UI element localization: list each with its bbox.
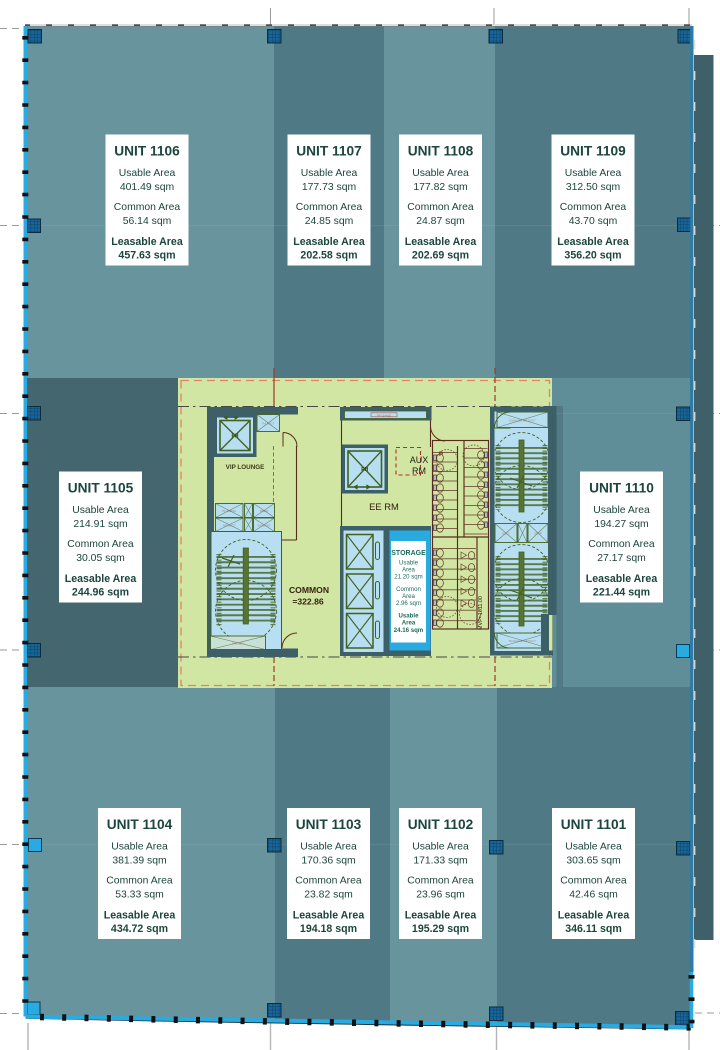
svg-text:Common Area: Common Area [296,202,363,213]
svg-text:Common Area: Common Area [407,876,474,887]
svg-text:56.14 sqm: 56.14 sqm [123,216,172,227]
svg-text:Usable Area: Usable Area [111,842,168,853]
svg-text:Usable Area: Usable Area [300,842,357,853]
svg-text:Common Area: Common Area [588,539,655,550]
svg-text:170.36 sqm: 170.36 sqm [301,856,355,867]
svg-text:Leasable Area: Leasable Area [557,236,629,248]
svg-text:30.05 sqm: 30.05 sqm [76,553,125,564]
svg-text:24.16 sqm: 24.16 sqm [394,627,424,634]
svg-text:42.46 sqm: 42.46 sqm [569,890,618,901]
svg-text:RISER: RISER [260,509,268,513]
svg-text:43.70 sqm: 43.70 sqm [569,216,618,227]
svg-text:Leasable Area: Leasable Area [293,236,365,248]
svg-text:UNIT 1103: UNIT 1103 [296,817,362,832]
svg-text:Usable: Usable [399,560,419,567]
svg-text:P.A DUCT: P.A DUCT [262,422,274,426]
svg-text:Usable Area: Usable Area [565,842,622,853]
svg-text:Common Area: Common Area [407,202,474,213]
svg-text:UNIT 1105: UNIT 1105 [68,481,134,496]
svg-text:24.87 sqm: 24.87 sqm [416,216,465,227]
svg-text:P.A DUCT: P.A DUCT [232,641,244,645]
svg-text:EXHAUST AIR DUCT: EXHAUST AIR DUCT [510,418,536,422]
svg-text:53.33 sqm: 53.33 sqm [115,890,164,901]
svg-text:DUCT: DUCT [502,532,510,536]
svg-text:AIR DUCT: AIR DUCT [223,523,236,527]
svg-text:EXHAUST: EXHAUST [258,523,271,527]
svg-text:Usable Area: Usable Area [565,168,622,179]
svg-text:FH: FH [232,434,239,440]
svg-text:24.85 sqm: 24.85 sqm [305,216,354,227]
svg-text:Common: Common [396,586,421,593]
svg-text:Leasable Area: Leasable Area [405,910,477,922]
svg-text:Common Area: Common Area [67,539,134,550]
svg-text:202.69 sqm: 202.69 sqm [412,250,469,262]
svg-text:=322.86: =322.86 [292,597,324,607]
svg-text:STAIR: STAIR [534,532,542,536]
svg-text:Area: Area [402,593,415,600]
svg-text:23.82 sqm: 23.82 sqm [304,890,353,901]
svg-text:P: P [439,452,443,458]
svg-text:21.20 sqm: 21.20 sqm [394,574,422,581]
svg-text:312.50 sqm: 312.50 sqm [566,182,620,193]
svg-text:434.72 sqm: 434.72 sqm [111,923,168,935]
svg-text:AUX: AUX [410,455,429,465]
svg-text:UNIT 1102: UNIT 1102 [408,817,474,832]
svg-text:Usable Area: Usable Area [412,842,469,853]
svg-text:Leasable Area: Leasable Area [405,236,477,248]
svg-text:202.58 sqm: 202.58 sqm [300,250,357,262]
svg-text:171.33 sqm: 171.33 sqm [413,856,467,867]
svg-text:EE RM: EE RM [369,501,399,512]
svg-text:UNIT 1104: UNIT 1104 [107,817,173,832]
svg-text:PLUMBING: PLUMBING [222,509,236,513]
svg-text:195.29 sqm: 195.29 sqm [412,923,469,935]
svg-text:Leasable Area: Leasable Area [558,910,630,922]
svg-text:Usable Area: Usable Area [412,168,469,179]
svg-text:Leasable Area: Leasable Area [293,910,365,922]
svg-text:177.73 sqm: 177.73 sqm [302,182,356,193]
svg-text:Usable: Usable [399,613,420,620]
svg-text:UNIT 1106: UNIT 1106 [114,144,180,159]
svg-text:Area: Area [402,567,415,574]
svg-text:194.27 sqm: 194.27 sqm [594,519,648,530]
svg-text:214.91 sqm: 214.91 sqm [73,519,127,530]
svg-text:356.20 sqm: 356.20 sqm [564,250,621,262]
svg-text:177.82 sqm: 177.82 sqm [413,182,467,193]
svg-text:RP CHASE: RP CHASE [377,413,391,417]
svg-text:457.63 sqm: 457.63 sqm [118,250,175,262]
svg-text:Common Area: Common Area [114,202,181,213]
svg-text:Common Area: Common Area [560,202,627,213]
svg-text:BAGGAGE AIR DUCT: BAGGAGE AIR DUCT [509,639,536,643]
svg-text:UNIT 1110: UNIT 1110 [589,481,654,496]
svg-text:UNIT 1108: UNIT 1108 [408,144,474,159]
svg-text:23.96 sqm: 23.96 sqm [416,890,465,901]
svg-text:UNIT 1101: UNIT 1101 [561,817,627,832]
svg-text:RM: RM [412,466,426,476]
svg-text:UNIT 1107: UNIT 1107 [296,144,362,159]
svg-text:381.39 sqm: 381.39 sqm [112,856,166,867]
svg-text:Leasable Area: Leasable Area [111,236,183,248]
svg-text:Leasable Area: Leasable Area [65,573,137,585]
svg-text:FH: FH [361,467,368,473]
svg-text:Common Area: Common Area [295,876,362,887]
svg-text:Usable Area: Usable Area [72,505,129,516]
svg-text:221.44 sqm: 221.44 sqm [593,587,650,599]
svg-text:Common Area: Common Area [106,876,173,887]
svg-text:Usable Area: Usable Area [119,168,176,179]
svg-text:Usable Area: Usable Area [593,505,650,516]
svg-text:194.18 sqm: 194.18 sqm [300,923,357,935]
svg-text:303.65 sqm: 303.65 sqm [566,856,620,867]
svg-text:VIP LOUNGE: VIP LOUNGE [226,464,265,471]
svg-text:401.49 sqm: 401.49 sqm [120,182,174,193]
svg-text:Leasable Area: Leasable Area [586,573,658,585]
svg-text:244.96 sqm: 244.96 sqm [72,587,129,599]
svg-text:UNIT 1109: UNIT 1109 [560,144,626,159]
svg-text:2.96 sqm: 2.96 sqm [396,600,421,607]
svg-text:27.17 sqm: 27.17 sqm [597,553,646,564]
svg-text:Leasable Area: Leasable Area [104,910,176,922]
svg-text:COMMON: COMMON [289,585,329,595]
svg-text:346.11 sqm: 346.11 sqm [565,923,622,935]
svg-text:Usable Area: Usable Area [301,168,358,179]
svg-text:Common Area: Common Area [560,876,627,887]
svg-text:STORAGE: STORAGE [391,550,426,557]
svg-text:MVP=1811.00: MVP=1811.00 [478,596,484,630]
svg-text:Area: Area [402,620,416,627]
